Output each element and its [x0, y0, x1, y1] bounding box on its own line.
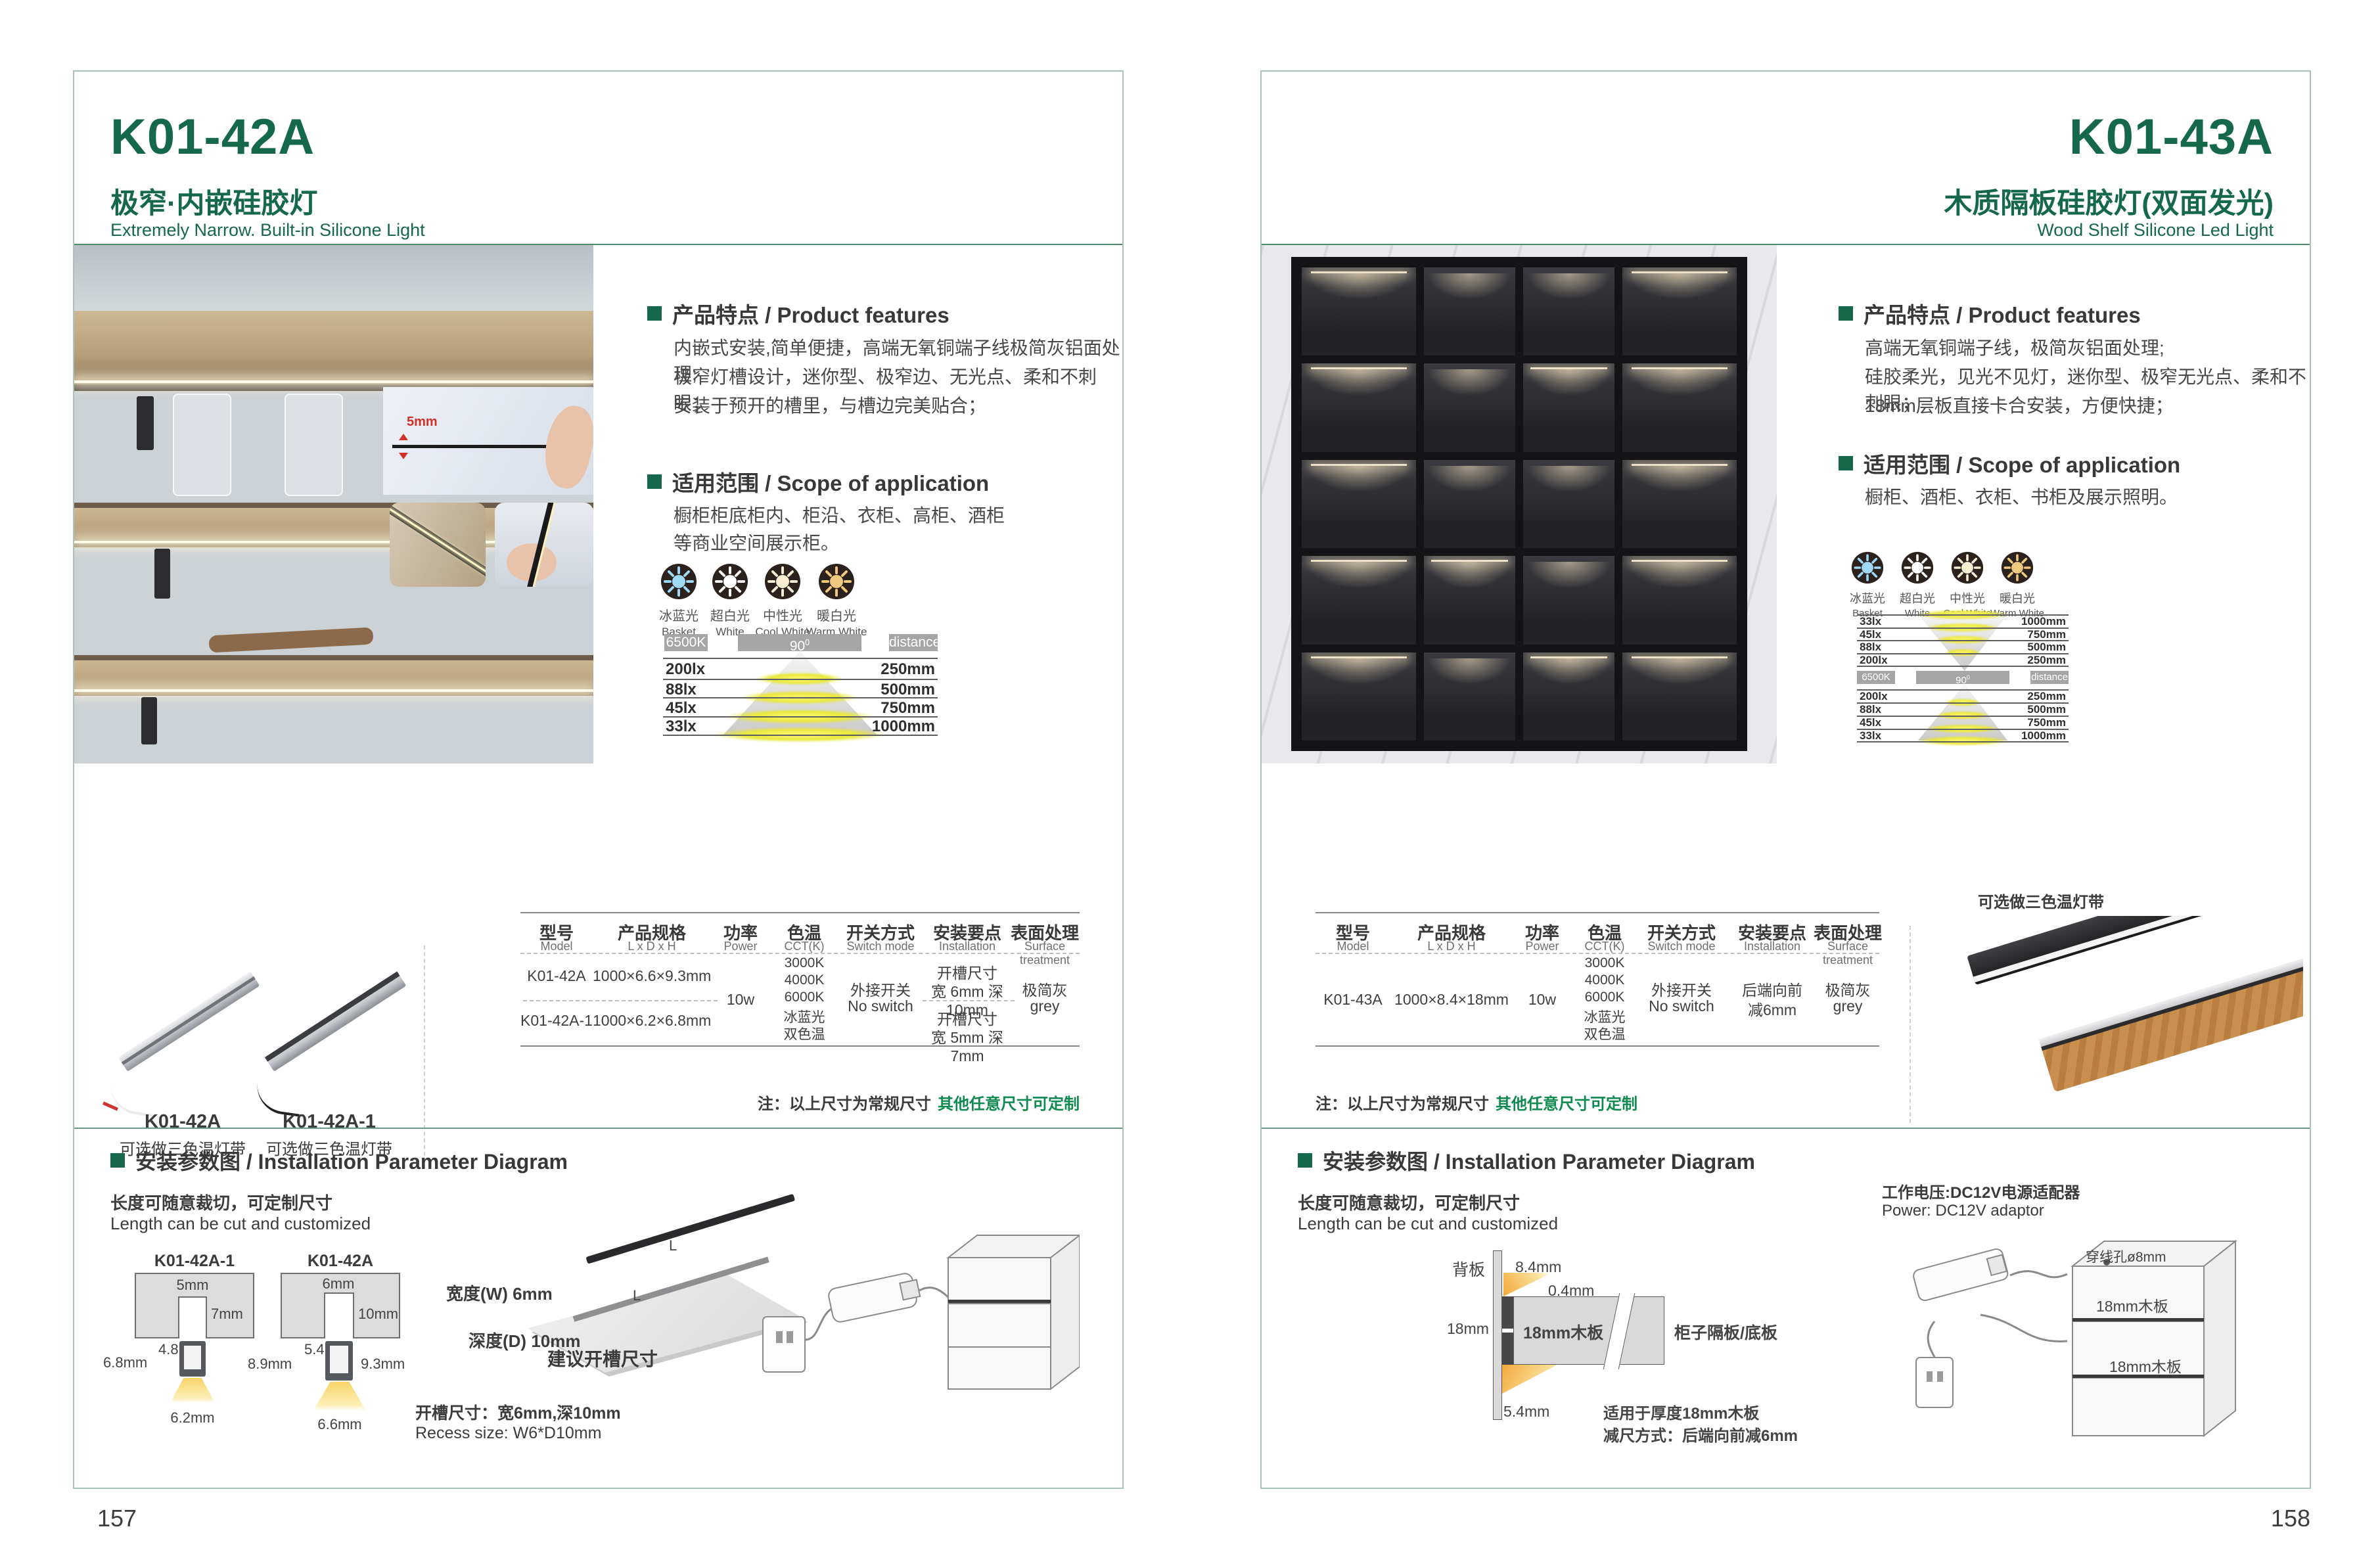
cell-surface-zh: 极简灰 [1002, 978, 1087, 1000]
cut-note-en: Length can be cut and customized [1298, 1214, 1558, 1234]
sun-icon [818, 563, 855, 600]
col-header-en: Surface treatment [1805, 940, 1890, 967]
table-note-black: 注：以上尺寸为常规尺寸 [1316, 1095, 1489, 1113]
col-header-en: Power [1513, 940, 1572, 953]
section-bullet-icon [1839, 306, 1853, 321]
cell-size: 1000×6.2×6.8mm [593, 1012, 711, 1030]
col-header-en: L x D x H [593, 940, 711, 953]
install-divider-dashed [923, 1000, 1015, 1001]
lux-value: 88lx [1860, 641, 1881, 654]
product-title-en-left: Extremely Narrow. Built-in Silicone Ligh… [110, 220, 425, 240]
cabinet-cell [1302, 363, 1416, 451]
cell-model: K01-42A-1 [517, 1012, 596, 1030]
product-image-k01-42a: K01-42A 可选做三色温灯带 [113, 946, 252, 1156]
cct-option-warm-white: 暖白光 Warm White [798, 563, 875, 639]
section-bullet-icon [110, 1153, 125, 1168]
backboard-label: 背板 [1452, 1257, 1485, 1281]
sun-icon [712, 563, 748, 600]
lux-value: 45lx [666, 699, 697, 718]
light-fan [170, 1378, 215, 1403]
cabinet-cell [1302, 556, 1416, 644]
photo-canister-1 [173, 394, 231, 496]
spec-table-right: 型号 Model 产品规格 L x D x H 功率 Power 色温 CCT(… [1316, 912, 1879, 1047]
distance-value: 750mm [2027, 628, 2066, 641]
col-header-en: Model [1314, 940, 1392, 953]
cabinet-cell [1622, 363, 1737, 451]
sun-icon [1951, 551, 1984, 584]
distance-value: 1000mm [872, 718, 935, 736]
cell-switch-en: No switch [1636, 997, 1728, 1015]
dim-top: 6mm [307, 1275, 370, 1292]
lux-value: 33lx [666, 718, 697, 736]
spec-table-left: 型号 Model 产品规格 L x D x H 功率 Power 色温 CCT(… [520, 912, 1080, 1047]
cell-power: 10w [1513, 991, 1572, 1009]
cell-surface-zh: 极简灰 [1805, 978, 1890, 1000]
cabinet-cell [1523, 556, 1614, 644]
distance-bar: distance [889, 634, 938, 651]
iso-caption: 建议开槽尺寸 [547, 1345, 658, 1371]
distance-value: 750mm [881, 699, 935, 718]
fit-note-2: 减尺方式：后端向前减6mm [1603, 1423, 1798, 1446]
cabinet-cell [1424, 460, 1515, 548]
sun-icon [1901, 551, 1934, 584]
install-heading-text: 安装参数图 / Installation Parameter Diagram [1323, 1145, 1755, 1175]
table-note-green: 其他任意尺寸可定制 [938, 1095, 1080, 1113]
power-label-zh: 工作电压:DC12V电源适配器 [1882, 1179, 2080, 1202]
photo-wood-board [208, 627, 373, 652]
cell-cct: 6000K [1568, 990, 1641, 1005]
aluminum-profile-bar [118, 971, 260, 1072]
cabinet-cell [1424, 556, 1515, 644]
photo-ceiling [74, 245, 593, 311]
distance-value: 1000mm [2021, 615, 2066, 628]
cell-install: 宽 5mm 深 7mm [918, 1025, 1017, 1065]
cell-size: 1000×8.4×18mm [1392, 991, 1511, 1009]
table-border-bottom [1316, 1045, 1879, 1047]
col-header-en: Power [711, 940, 770, 953]
diagram-label: K01-42A-1 [135, 1252, 254, 1271]
cabinet-cell [1302, 460, 1416, 548]
beam-distance-chart-right: 33lx 45lx 88lx 200lx 1000mm 750mm 500mm … [1857, 614, 2069, 746]
table-note-green: 其他任意尺寸可定制 [1496, 1095, 1637, 1113]
product-image-k01-43a [1955, 916, 2303, 1113]
cell-cct: 3000K [1568, 955, 1641, 971]
module-gap [1502, 1329, 1513, 1333]
page-number-right: 158 [2247, 1505, 2310, 1532]
photo-bracket-3 [154, 549, 170, 599]
length-label: L [669, 1237, 677, 1254]
distance-value: 500mm [881, 681, 935, 699]
product-image-note: 可选做三色温灯带 [1978, 889, 2104, 912]
board-break [1603, 1293, 1636, 1369]
section-heading-features-left: 产品特点 / Product features [647, 298, 950, 329]
cell-model: K01-42A [517, 967, 596, 985]
install-divider-left [74, 1128, 1122, 1129]
distance-bar: distance [2030, 671, 2069, 684]
cct-option-warm-white: 暖白光 Warm White [1983, 551, 2051, 619]
catalog-page-right: K01-43A 木质隔板硅胶灯(双面发光) Wood Shelf Silicon… [1260, 70, 2311, 1489]
cabinet-cell [1622, 460, 1737, 548]
lux-value: 45lx [1860, 628, 1881, 641]
cabinet-cell [1523, 267, 1614, 355]
photo-led-strip-3 [74, 689, 593, 692]
col-header-en: CCT(K) [768, 940, 840, 953]
lux-value: 88lx [666, 681, 697, 699]
section-bullet-icon [1839, 456, 1853, 470]
cabinet-cell [1622, 556, 1737, 644]
fit-note-1: 适用于厚度18mm木板 [1603, 1400, 1759, 1423]
product-title-zh-right: 木质隔板硅胶灯(双面发光) [1944, 181, 2274, 221]
chart-line [663, 658, 938, 659]
photo-inset-thin-profile: 5mm [383, 387, 593, 495]
cabinet-cell [1523, 460, 1614, 548]
kelvin-bar: 6500K [1857, 671, 1895, 684]
table-note: 注：以上尺寸为常规尺寸其他任意尺寸可定制 [758, 1091, 1080, 1114]
profile-section [325, 1341, 353, 1381]
distance-value: 750mm [2027, 716, 2066, 729]
wiring-cabinet-diagram-right [1875, 1223, 2256, 1446]
distance-value: 250mm [2027, 690, 2066, 703]
dim-18: 18mm [1447, 1320, 1489, 1338]
dim-5-4: 5.4mm [1503, 1403, 1549, 1421]
lux-value: 200lx [666, 660, 705, 679]
feature-line: 18mm层板直接卡合安装，方便快捷； [1865, 392, 2174, 418]
dim-side: 10mm [358, 1306, 398, 1323]
page-title-model-right: K01-43A [2069, 108, 2274, 166]
section-heading-features-right: 产品特点 / Product features [1839, 298, 2141, 329]
section-heading-install-right: 安装参数图 / Installation Parameter Diagram [1298, 1145, 1755, 1175]
dim-height: 8.9mm [248, 1356, 292, 1373]
power-label-en: Power: DC12V adaptor [1882, 1202, 2044, 1220]
aluminum-edge [2039, 957, 2303, 1047]
inset-arrow-down [399, 453, 408, 464]
lux-value: 33lx [1860, 615, 1881, 628]
light-fan [313, 1382, 366, 1411]
lux-value: 200lx [1860, 654, 1888, 667]
light-fan-up [1503, 1273, 1552, 1296]
hole-label: 穿线孔ø8mm [2086, 1246, 2166, 1266]
profile-cavity [184, 1346, 201, 1369]
display-cabinet [1291, 257, 1747, 751]
recess-size-zh: 开槽尺寸：宽6mm,深10mm [415, 1400, 621, 1424]
section-heading-scope-right: 适用范围 / Scope of application [1839, 447, 2180, 479]
col-header-en: Switch mode [835, 940, 927, 953]
distance-value: 250mm [881, 660, 935, 679]
cell-cct: 双色温 [1568, 1024, 1641, 1043]
recess-size-en: Recess size: W6*D10mm [415, 1424, 601, 1443]
sun-icon [2001, 551, 2034, 584]
dim-height: 6.8mm [103, 1354, 147, 1371]
lux-value: 33lx [1860, 729, 1881, 742]
inset-dim-label: 5mm [407, 415, 438, 430]
angle-bar: 900 [738, 634, 861, 651]
dim-side: 7mm [211, 1306, 243, 1323]
cell-surface-en: grey [1002, 997, 1087, 1015]
features-heading-text: 产品特点 / Product features [672, 298, 950, 329]
photo-shelf-1 [74, 311, 593, 391]
cell-cct: 双色温 [768, 1024, 840, 1043]
scope-line: 橱柜、酒柜、衣柜、书柜及展示照明。 [1865, 483, 2178, 509]
cabinet-cell [1523, 363, 1614, 451]
cell-cct: 6000K [768, 990, 840, 1005]
section-heading-scope-left: 适用范围 / Scope of application [647, 466, 989, 497]
profile-cavity [330, 1346, 348, 1373]
led-module [1502, 1296, 1513, 1365]
install-divider-right [1262, 1128, 2310, 1129]
angle-bar: 900 [1916, 671, 2009, 684]
feature-line: 高端无氧铜端子线，极简灰铝面处理; [1865, 334, 2164, 360]
col-header-en: CCT(K) [1568, 940, 1641, 953]
cct-label-zh: 暖白光 [798, 605, 875, 624]
aluminum-profile-bar [265, 971, 406, 1072]
table-note: 注：以上尺寸为常规尺寸其他任意尺寸可定制 [1316, 1091, 1637, 1114]
cabinet-cell [1424, 652, 1515, 741]
cell-size: 1000×6.6×9.3mm [593, 967, 711, 985]
dim-bottom: 6.6mm [308, 1416, 371, 1433]
light-fan-down [1502, 1365, 1557, 1394]
profile-diffuser [1973, 916, 2277, 982]
recess-notch [178, 1296, 207, 1338]
black-profile-bar [1967, 916, 2277, 985]
cut-note-en: Length can be cut and customized [110, 1214, 371, 1234]
col-header-en: Switch mode [1636, 940, 1728, 953]
product-image-model: K01-42A [113, 1111, 252, 1133]
photo-thumb-hand [495, 503, 593, 587]
inset-hand [537, 401, 593, 492]
photo-led-strip-1 [74, 380, 593, 383]
wood-shelf-bar [2039, 957, 2303, 1092]
section-bullet-icon [647, 474, 662, 489]
photo-thumb-recessed [390, 503, 486, 587]
cabinet-cell [1622, 652, 1737, 741]
feature-line: 安装于预开的槽里，与槽边完美贴合； [674, 392, 986, 418]
cell-switch-en: No switch [835, 997, 927, 1015]
scope-line: 等商业空间展示柜。 [674, 529, 839, 555]
board-label: 18mm木板 [1523, 1320, 1603, 1344]
cabinet-cell [1302, 652, 1416, 741]
lux-value: 45lx [1860, 716, 1881, 729]
cabinet-cell [1622, 267, 1737, 355]
length-label: L [633, 1287, 641, 1304]
dim-8-4: 8.4mm [1515, 1258, 1561, 1276]
shelf-label-2: 18mm木板 [2109, 1354, 2182, 1377]
cut-note-zh: 长度可随意裁切，可定制尺寸 [110, 1190, 332, 1214]
section-bullet-icon [647, 306, 662, 321]
sun-icon [764, 563, 801, 600]
features-heading-text: 产品特点 / Product features [1864, 298, 2141, 329]
cabinet-cell [1523, 652, 1614, 741]
col-header-en: Model [517, 940, 596, 953]
dim-bottom: 6.2mm [162, 1409, 223, 1426]
profile-section [179, 1341, 206, 1377]
table-note-black: 注：以上尺寸为常规尺寸 [758, 1095, 931, 1113]
cabinet-cell [1302, 267, 1416, 355]
iso-width-label: 宽度(W) 6mm [446, 1281, 553, 1305]
cell-surface-en: grey [1805, 997, 1890, 1015]
cabinet-cell [1424, 267, 1515, 355]
section-heading-install-left: 安装参数图 / Installation Parameter Diagram [110, 1145, 568, 1175]
cabinet-shelf-label: 柜子隔板/底板 [1674, 1320, 1777, 1344]
kelvin-bar: 6500K [664, 634, 708, 651]
content-divider-dashed [424, 946, 425, 1162]
wiring-cabinet-diagram-left [751, 1218, 1080, 1422]
row-divider-dashed [523, 1000, 718, 1001]
lux-value: 200lx [1860, 690, 1888, 703]
distance-value: 1000mm [2021, 729, 2066, 742]
diagram-label: K01-42A [281, 1252, 400, 1271]
shelf-label-1: 18mm木板 [2096, 1294, 2168, 1316]
dim-side2: 9.3mm [361, 1356, 405, 1373]
product-image-model: K01-42A-1 [260, 1111, 399, 1133]
inset-arrow-up [399, 429, 408, 440]
distance-value: 250mm [2027, 654, 2066, 667]
profile-silicone-insert [265, 971, 400, 1061]
lux-value: 88lx [1860, 703, 1881, 716]
sun-icon [1851, 551, 1884, 584]
table-border-top [520, 912, 1080, 913]
profile-channel-line [122, 976, 256, 1065]
col-header-en: L x D x H [1392, 940, 1511, 953]
cell-power: 10w [711, 991, 770, 1009]
cut-note-zh: 长度可随意裁切，可定制尺寸 [1298, 1190, 1520, 1214]
thumb-strip-dark [390, 505, 486, 583]
cell-cct: 4000K [1568, 972, 1641, 988]
beam-distance-chart-left: 6500K 900 distance 200lx 88lx 45lx 33lx … [663, 634, 938, 743]
product-image-k01-42a-1: K01-42A-1 可选做三色温灯带 [260, 946, 399, 1156]
content-divider-dashed [1910, 926, 1911, 1123]
product-title-zh-left: 极窄·内嵌硅胶灯 [110, 181, 317, 221]
backboard [1493, 1250, 1502, 1420]
product-title-en-right: Wood Shelf Silicone Led Light [2037, 220, 2274, 240]
cell-model: K01-43A [1314, 991, 1392, 1009]
photo-canister-2 [285, 394, 343, 496]
cell-switch-zh: 外接开关 [835, 978, 927, 1000]
cabinet-cell [1424, 363, 1515, 451]
cell-switch-zh: 外接开关 [1636, 978, 1728, 1000]
page-title-model-left: K01-42A [110, 108, 315, 166]
dim-top: 5mm [161, 1277, 224, 1294]
cct-label-zh: 暖白光 [1983, 589, 2051, 606]
distance-value: 500mm [2027, 641, 2066, 654]
photo-bracket-4 [141, 697, 157, 744]
scope-heading-text: 适用范围 / Scope of application [1864, 447, 2180, 479]
inset-profile-strip [392, 445, 558, 448]
install-heading-text: 安装参数图 / Installation Parameter Diagram [135, 1145, 568, 1175]
product-photo-right [1262, 245, 1777, 764]
scope-heading-text: 适用范围 / Scope of application [672, 466, 989, 497]
product-photo-left: 5mm [74, 245, 593, 764]
chart-line [663, 679, 938, 680]
section-bullet-icon [1298, 1153, 1312, 1168]
page-number-left: 157 [97, 1505, 137, 1532]
light-pool [1944, 649, 1981, 656]
recess-notch [324, 1292, 354, 1338]
cell-cct: 3000K [768, 955, 840, 971]
table-border-top [1316, 912, 1879, 913]
distance-value: 500mm [2027, 703, 2066, 716]
scope-line: 橱柜柜底柜内、柜沿、衣柜、高柜、酒柜 [674, 501, 1005, 528]
catalog-page-left: K01-42A 极窄·内嵌硅胶灯 Extremely Narrow. Built… [73, 70, 1124, 1489]
cell-cct: 4000K [768, 972, 840, 988]
photo-bracket-1 [137, 396, 154, 450]
